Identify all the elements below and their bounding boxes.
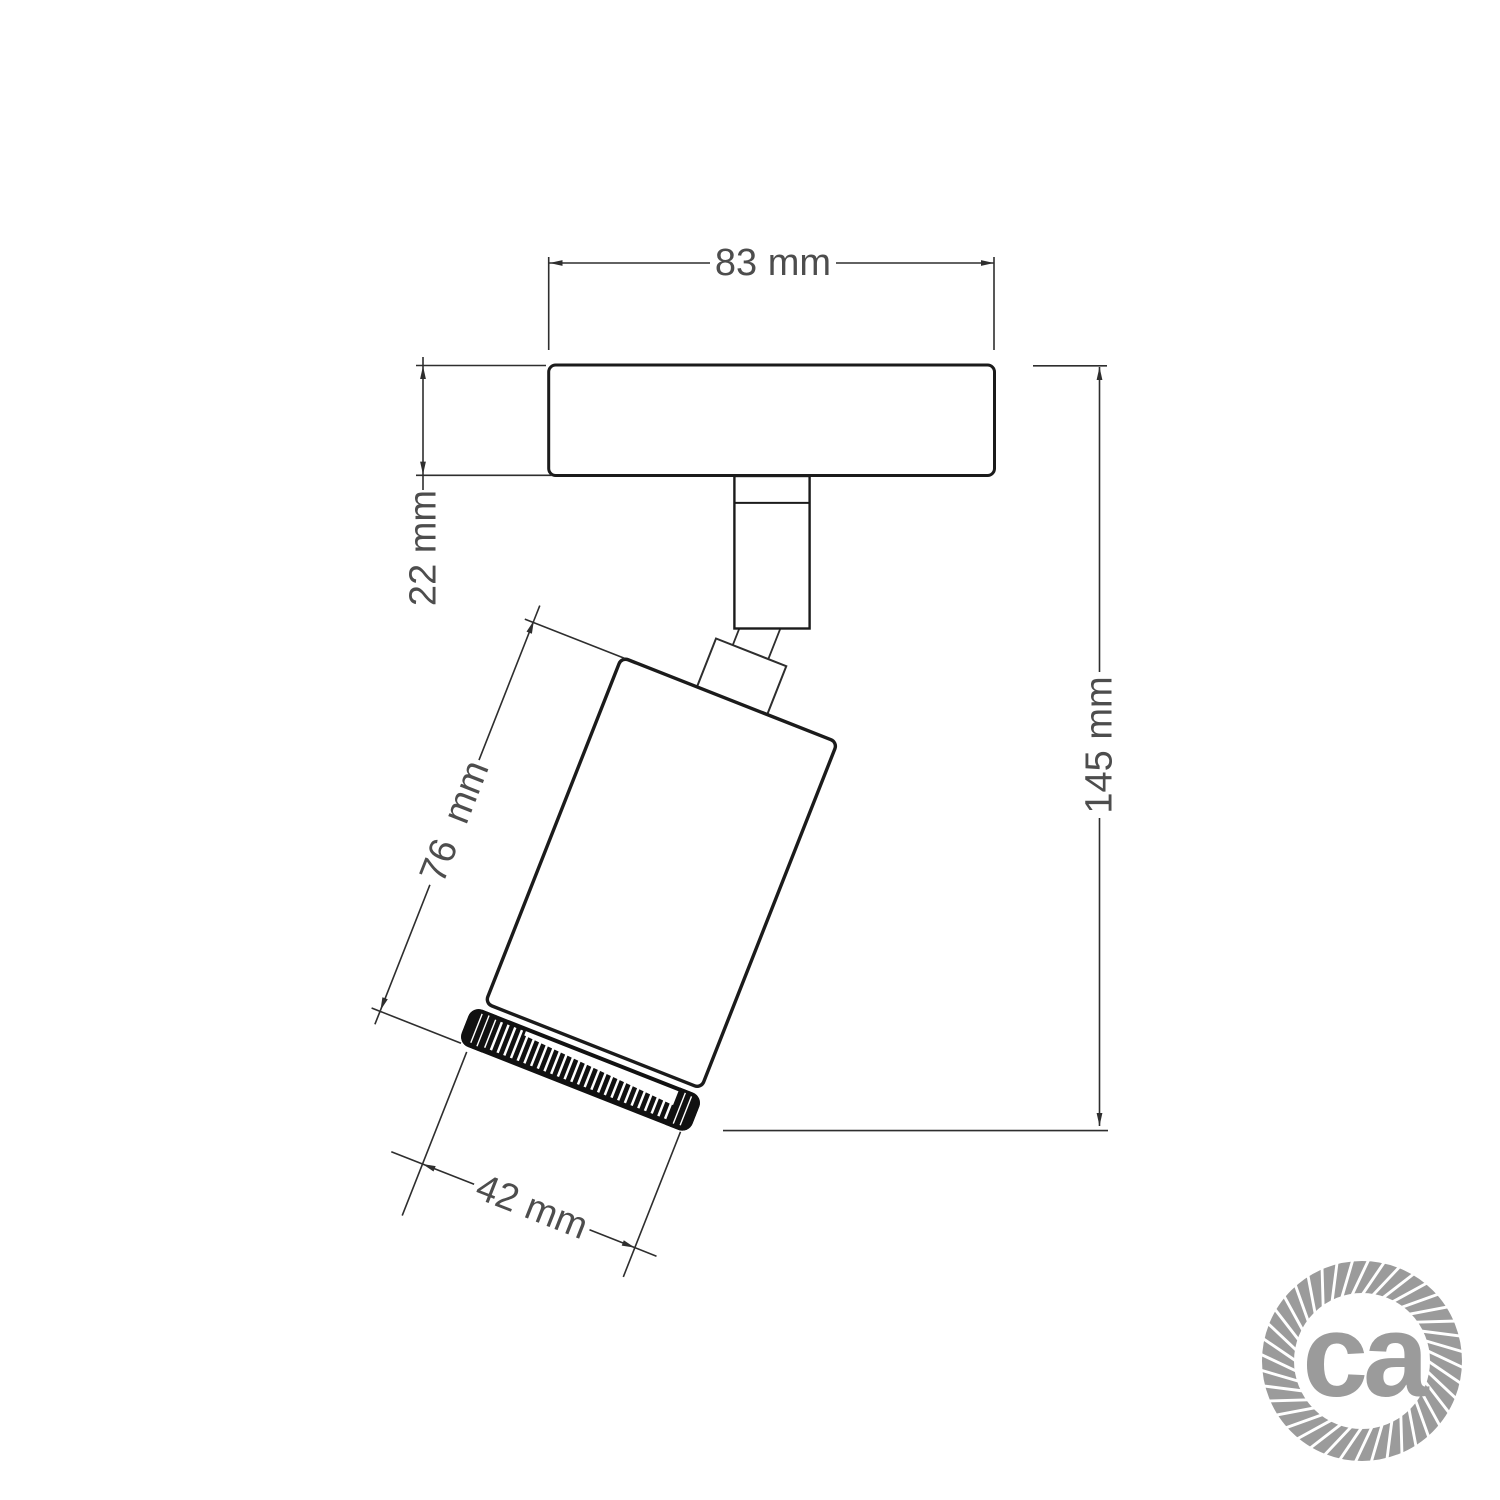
svg-text:ca: ca (1302, 1290, 1430, 1422)
svg-text:76 mm: 76 mm (412, 755, 498, 888)
svg-text:22 mm: 22 mm (403, 490, 445, 606)
svg-text:42 mm: 42 mm (470, 1166, 593, 1248)
svg-text:83 mm: 83 mm (715, 242, 831, 284)
svg-text:145 mm: 145 mm (1079, 676, 1121, 813)
